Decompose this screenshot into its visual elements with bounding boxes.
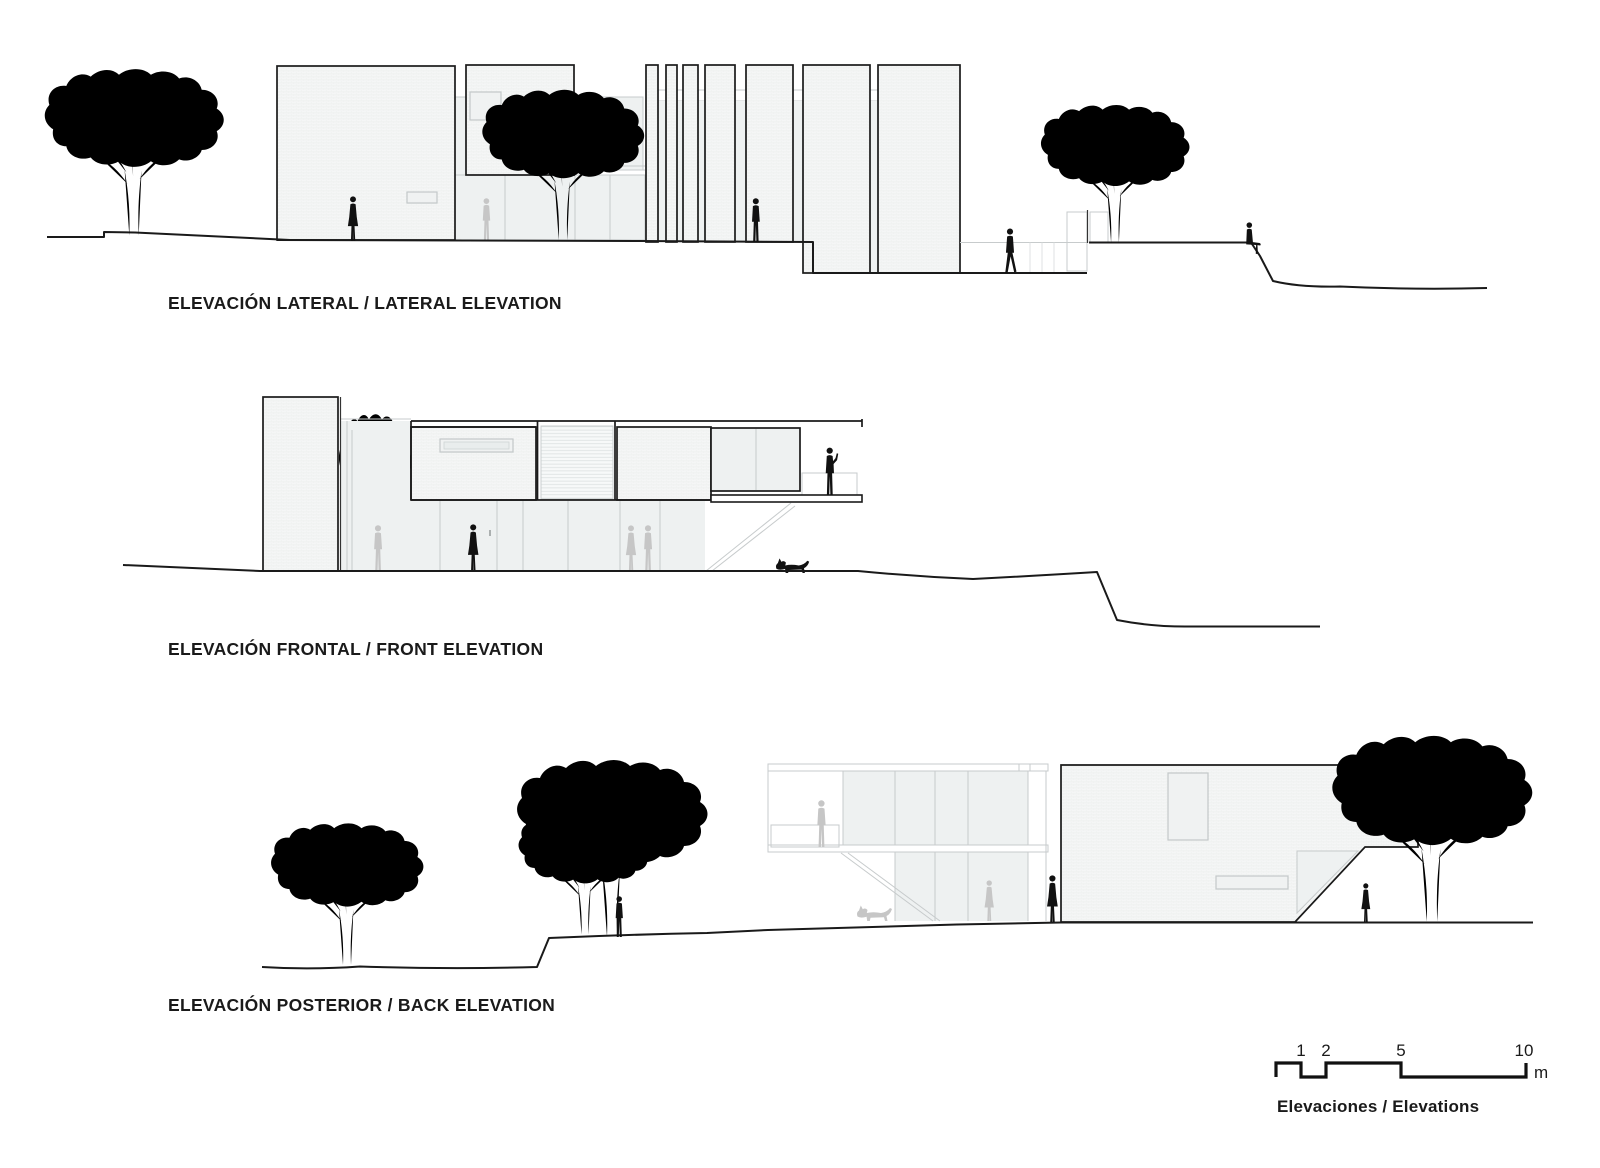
terrace-railing [960, 210, 1108, 272]
glazed-triangle [1297, 851, 1358, 913]
tree-sketch [1041, 105, 1190, 243]
posterior-elevation-drawing [262, 736, 1533, 968]
ground-line [277, 240, 1087, 273]
person-silhouette [616, 896, 623, 937]
drawing-set-caption: Elevaciones / Elevations [1277, 1097, 1479, 1117]
person-silhouette [1005, 229, 1016, 273]
tree-sketch [271, 823, 423, 965]
window [407, 192, 437, 203]
scale-tick-5: 5 [1396, 1041, 1405, 1061]
balcony-railing [771, 825, 839, 847]
ground-line [47, 232, 290, 240]
person-silhouette [1361, 883, 1370, 922]
lateral-elevation-title: ELEVACIÓN LATERAL / LATERAL ELEVATION [168, 293, 562, 314]
tree-sketch [517, 760, 707, 937]
roof-slab [768, 764, 1048, 771]
scale-tick-2: 2 [1321, 1041, 1330, 1061]
window [1216, 876, 1288, 889]
scale-unit-label: m [1534, 1063, 1548, 1083]
tree-sketch [1332, 736, 1532, 922]
ghost-dog-silhouette [857, 906, 892, 922]
posterior-elevation-title: ELEVACIÓN POSTERIOR / BACK ELEVATION [168, 995, 555, 1016]
building-volume [263, 397, 338, 571]
elevation-linework [0, 0, 1600, 1168]
upper-floor-volume [411, 419, 862, 502]
scale-tick-1: 1 [1296, 1041, 1305, 1061]
building-volume [277, 66, 455, 240]
louver-panel [541, 426, 613, 499]
scale-bar [1276, 1063, 1526, 1077]
lateral-elevation-drawing [45, 65, 1487, 289]
tree-sketch [45, 69, 224, 235]
frontal-elevation-title: ELEVACIÓN FRONTAL / FRONT ELEVATION [168, 639, 543, 660]
glazed-section [768, 764, 1048, 921]
person-silhouette [1246, 222, 1261, 254]
floor-slab [768, 845, 1048, 852]
ramp-diagonal [706, 503, 795, 571]
frontal-elevation-drawing [123, 397, 1320, 627]
ground-line [1089, 243, 1487, 289]
scale-tick-10: 10 [1515, 1041, 1534, 1061]
person-silhouette [1047, 875, 1058, 922]
ghost-person-silhouette [817, 800, 825, 847]
window [1168, 773, 1208, 840]
ground-line [123, 565, 1320, 627]
ground-line [262, 923, 1533, 969]
balcony-floor-slab [711, 495, 862, 502]
drawing-sheet: ELEVACIÓN LATERAL / LATERAL ELEVATION EL… [0, 0, 1600, 1168]
person-silhouette [826, 448, 839, 495]
